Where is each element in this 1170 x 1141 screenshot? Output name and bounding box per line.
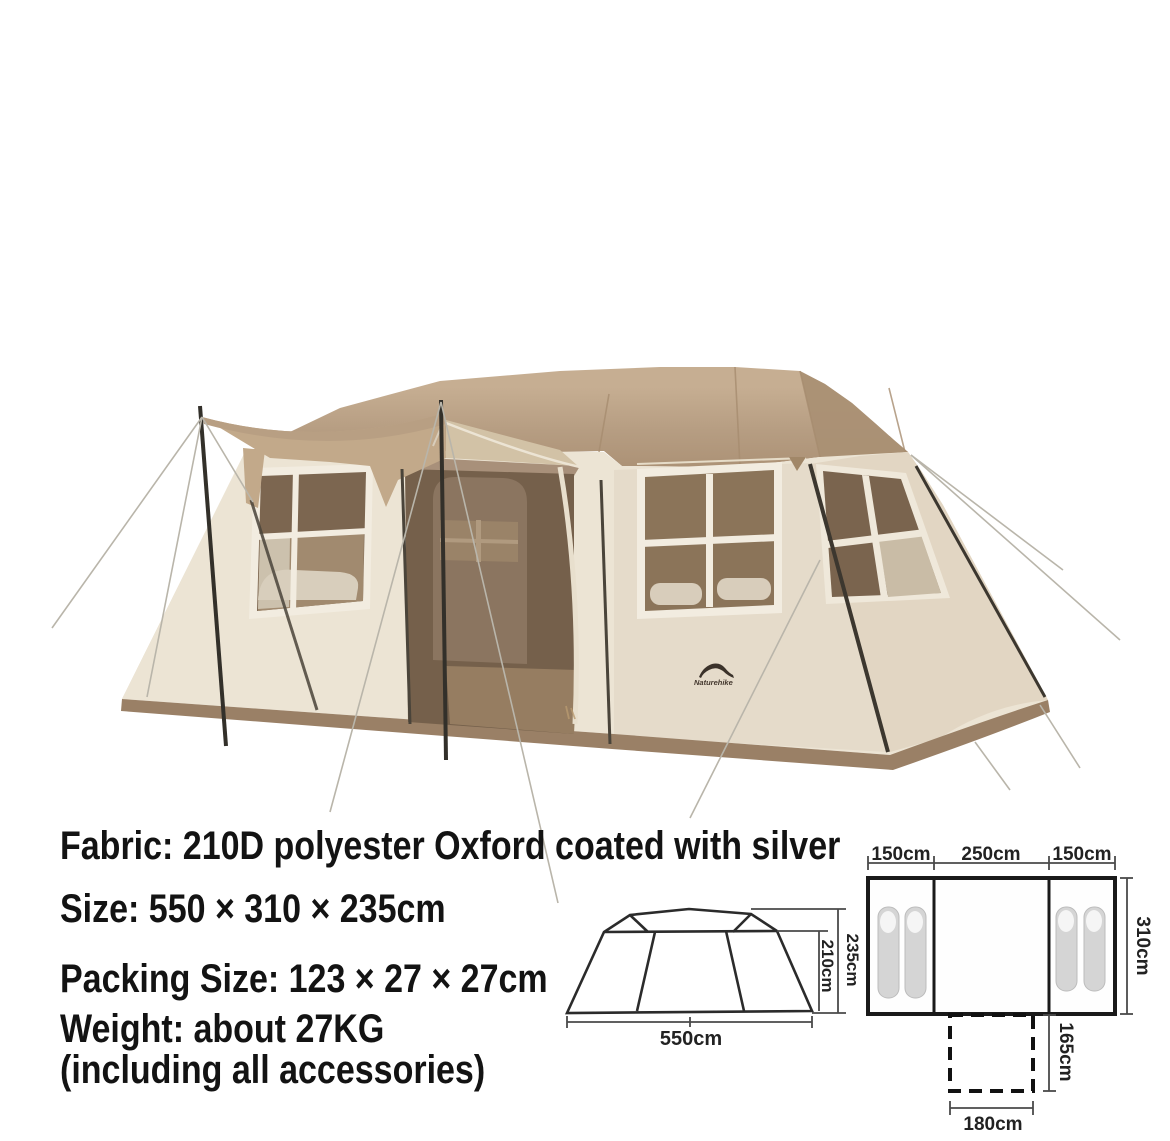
svg-text:150cm: 150cm [871, 844, 930, 865]
svg-text:Naturehike: Naturehike [694, 678, 733, 687]
svg-text:250cm: 250cm [961, 844, 1020, 865]
svg-text:310cm: 310cm [1132, 916, 1153, 975]
svg-text:550cm: 550cm [660, 1028, 722, 1050]
svg-text:210cm: 210cm [818, 940, 837, 993]
svg-text:180cm: 180cm [963, 1114, 1022, 1135]
svg-text:165cm: 165cm [1055, 1022, 1076, 1081]
svg-text:235cm: 235cm [843, 934, 862, 987]
svg-text:150cm: 150cm [1052, 844, 1111, 865]
